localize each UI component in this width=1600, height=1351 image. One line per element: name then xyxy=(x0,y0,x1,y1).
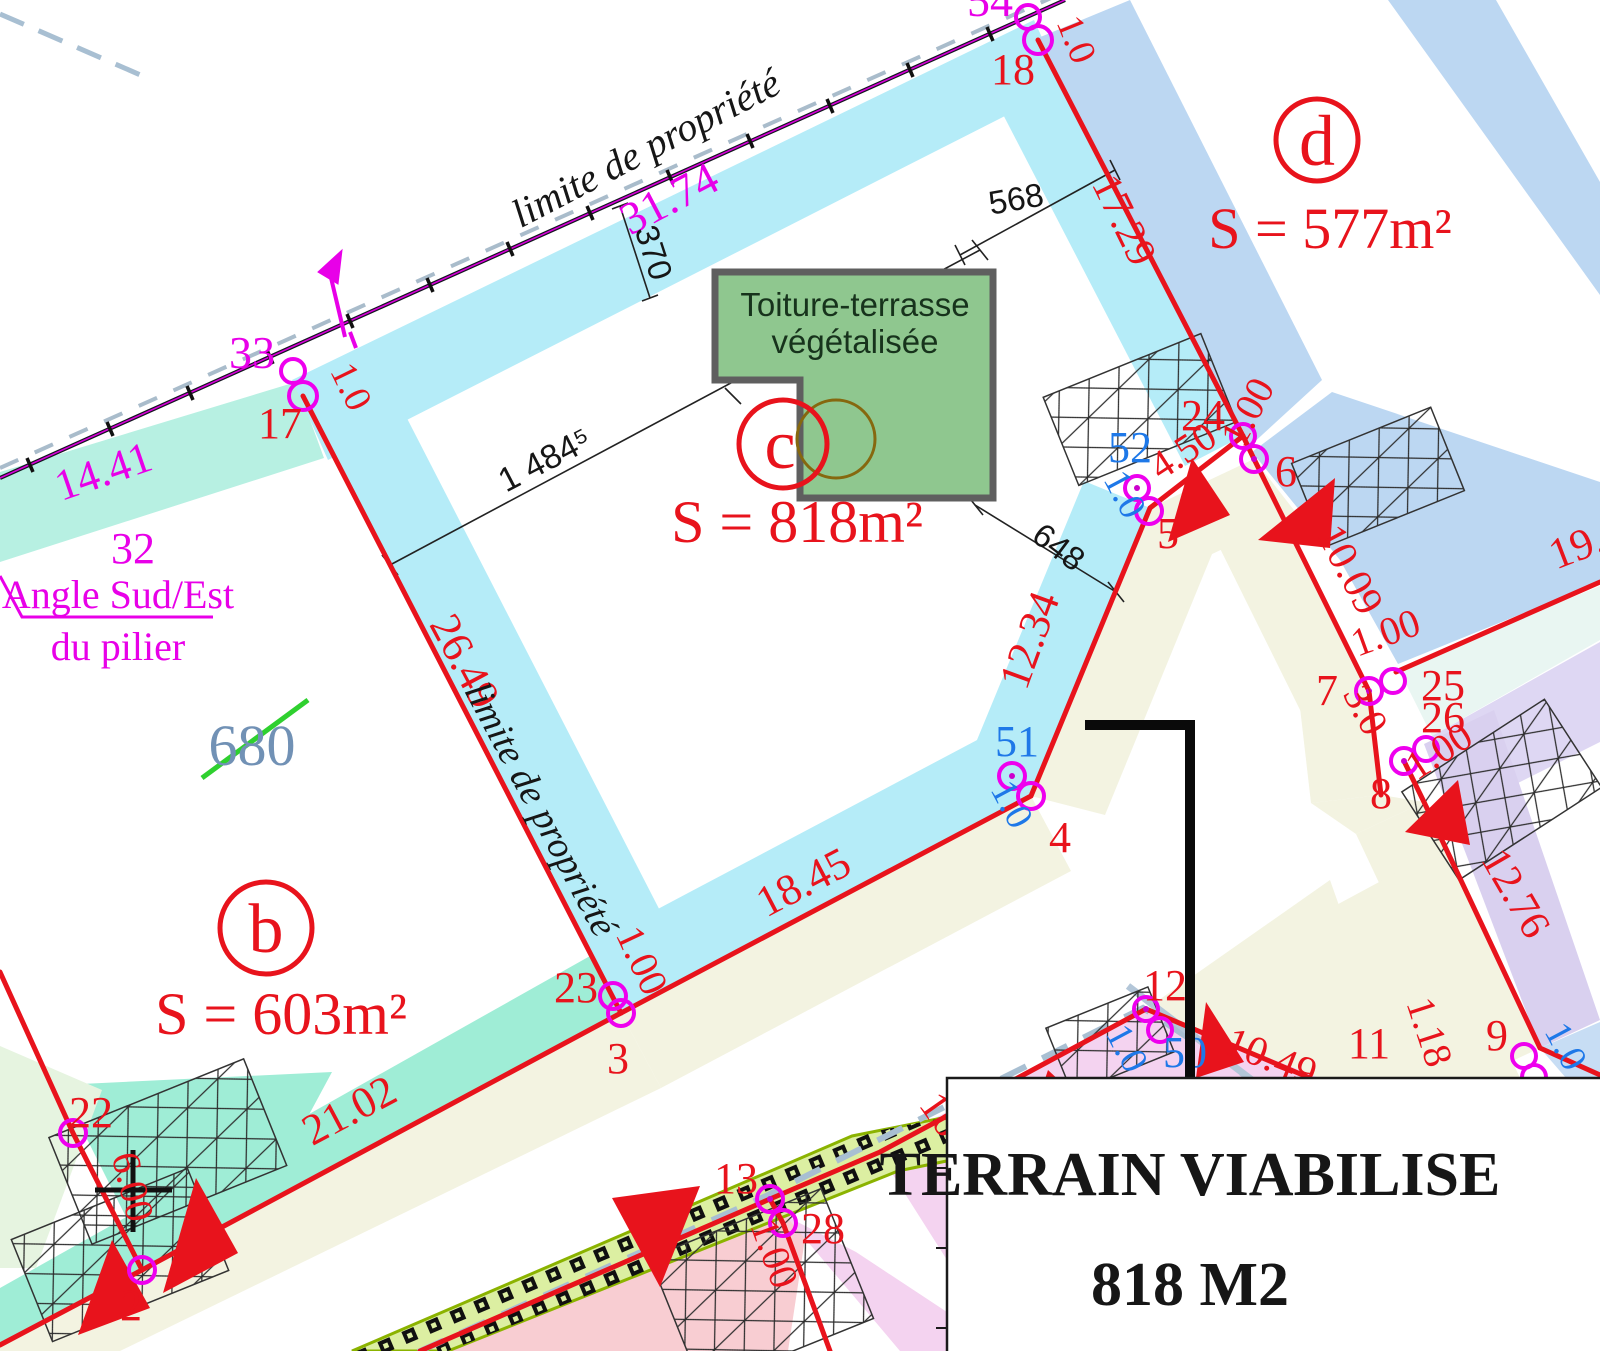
label-letter-b: b xyxy=(249,891,284,968)
label-p11: 11 xyxy=(1348,1019,1390,1068)
label-angle-2: du pilier xyxy=(51,624,185,669)
label-area-d: S = 577m² xyxy=(1208,196,1451,261)
label-p32: 32 xyxy=(111,524,155,573)
title-box: TERRAIN VIABILISE 818 M2 xyxy=(880,1078,1600,1351)
label-p4: 4 xyxy=(1049,813,1071,862)
label-p13: 13 xyxy=(714,1154,758,1203)
label-p9: 9 xyxy=(1486,1011,1508,1060)
cadastral-plan: limite de propriété 31.74 370 568 54 1.0… xyxy=(0,0,1600,1351)
label-568: 568 xyxy=(986,176,1047,222)
plan-canvas: limite de propriété 31.74 370 568 54 1.0… xyxy=(0,0,1600,1351)
label-p8: 8 xyxy=(1370,769,1392,818)
label-p6: 6 xyxy=(1275,447,1297,496)
label-p3: 3 xyxy=(607,1034,629,1083)
label-roof-2: végétalisée xyxy=(772,323,939,360)
title-box-line1: TERRAIN VIABILISE xyxy=(880,1141,1501,1209)
title-box-line2: 818 M2 xyxy=(1091,1251,1289,1319)
label-letter-c: c xyxy=(764,407,795,484)
label-p18: 18 xyxy=(991,45,1035,94)
label-p51: 51 xyxy=(995,717,1039,766)
label-p7: 7 xyxy=(1316,666,1338,715)
label-p5: 5 xyxy=(1157,509,1179,558)
label-area-b: S = 603m² xyxy=(155,981,407,1047)
label-p17: 17 xyxy=(258,399,302,448)
label-1484: 1 484⁵ xyxy=(492,420,598,500)
label-p28: 28 xyxy=(801,1204,845,1253)
label-p23: 23 xyxy=(554,963,598,1012)
label-angle-1: Angle Sud/Est xyxy=(2,572,234,617)
label-p12: 12 xyxy=(1143,961,1187,1010)
label-p54: 54 xyxy=(967,0,1013,26)
label-letter-d: d xyxy=(1299,101,1335,181)
label-area-c: S = 818m² xyxy=(671,489,923,555)
label-p2: 2 xyxy=(120,1281,142,1330)
label-p33: 33 xyxy=(229,327,275,378)
label-roof-1: Toiture-terrasse xyxy=(740,286,969,323)
label-p22: 22 xyxy=(69,1088,113,1137)
label-680: 680 xyxy=(209,713,296,778)
